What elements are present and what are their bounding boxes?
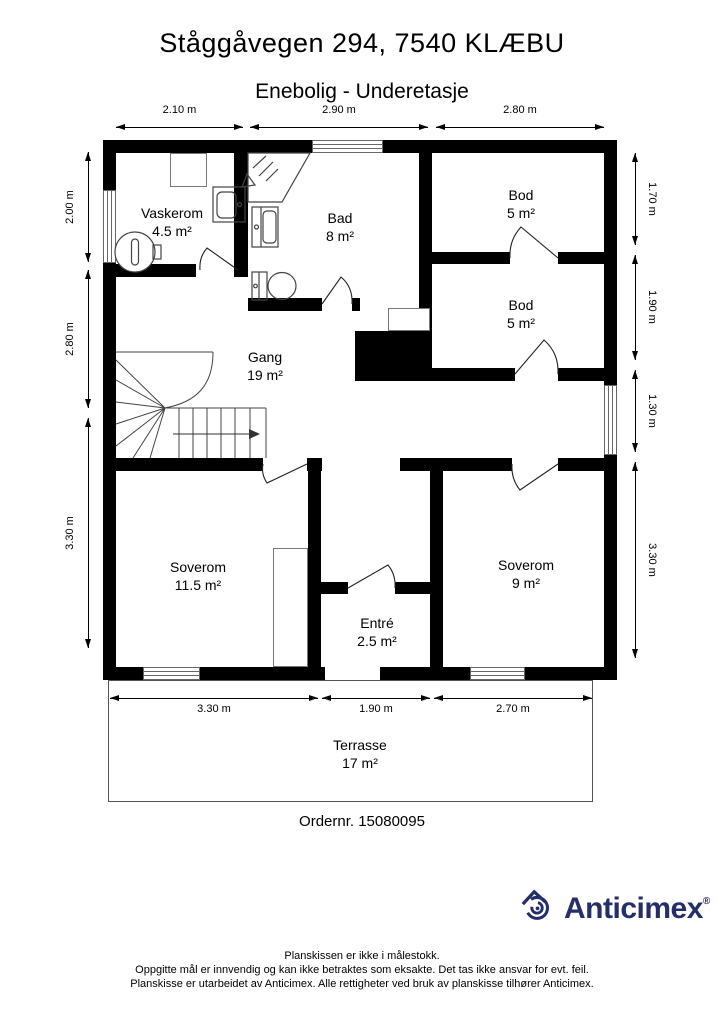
dim-arrow-bottom-2 (322, 698, 430, 699)
room-name: Vaskerom (112, 204, 232, 222)
dim-arrow-top-1 (116, 127, 243, 128)
door-entre-inner (348, 565, 395, 588)
room-label-bad: Bad 8 m² (280, 209, 400, 245)
dim-label: 3.30 m (63, 503, 77, 563)
logo-text: Anticimex® (564, 883, 710, 928)
room-area: 2.5 m² (317, 632, 437, 650)
footer-disclaimer: Planskissen er ikke i målestokk. Oppgitt… (0, 949, 724, 991)
dim-label: 2.80 m (63, 309, 77, 369)
dim-arrow-right-2 (635, 255, 636, 360)
dim-label: 1.90 m (322, 703, 430, 715)
room-name: Soverom (466, 556, 586, 574)
room-label-soverom1: Soverom 11.5 m² (138, 558, 258, 594)
dim-label: 1.90 m (645, 277, 659, 337)
dim-arrow-right-1 (635, 153, 636, 245)
anticimex-logo: Anticimex® (519, 883, 710, 928)
registered-mark: ® (703, 896, 710, 907)
dim-arrow-top-3 (436, 127, 604, 128)
footer-line: Oppgitte mål er innvendig og kan ikke be… (0, 963, 724, 977)
room-label-soverom2: Soverom 9 m² (466, 556, 586, 592)
toilet-icon (252, 272, 296, 300)
room-area: 4.5 m² (112, 222, 232, 240)
dim-arrow-left-1 (88, 152, 89, 262)
dim-label: 2.00 m (63, 177, 77, 237)
room-area: 9 m² (466, 574, 586, 592)
footer-line: Planskisse er utarbeidet av Anticimex. A… (0, 977, 724, 991)
logo-wordmark: Anticimex (564, 892, 703, 925)
room-label-bod1: Bod 5 m² (461, 186, 581, 222)
door-soverom1 (263, 464, 308, 483)
room-label-gang: Gang 19 m² (205, 348, 325, 384)
page-title: Ståggåvegen 294, 7540 KLÆBU (0, 28, 724, 59)
door-bod2 (515, 340, 558, 374)
room-name: Bad (280, 209, 400, 227)
dim-arrow-bottom-3 (434, 698, 592, 699)
room-name: Terrasse (300, 736, 420, 754)
door-vaskerom (200, 248, 238, 270)
room-name: Entré (317, 614, 437, 632)
room-area: 5 m² (461, 204, 581, 222)
dim-label: 3.30 m (645, 530, 659, 590)
shower-icon (242, 153, 310, 202)
room-area: 11.5 m² (138, 576, 258, 594)
dim-arrow-top-2 (250, 127, 428, 128)
room-label-terrasse: Terrasse 17 m² (300, 736, 420, 772)
room-area: 19 m² (205, 366, 325, 384)
dim-label: 1.30 m (645, 381, 659, 441)
room-label-bod2: Bod 5 m² (461, 296, 581, 332)
door-soverom2 (512, 464, 558, 490)
door-bad (322, 277, 352, 304)
footer-line: Planskissen er ikke i målestokk. (0, 949, 724, 963)
dim-label: 1.70 m (645, 169, 659, 229)
dim-label: 2.10 m (116, 104, 243, 116)
floorplan-page: { "header": { "title": "Ståggåvegen 294,… (0, 0, 724, 1024)
room-label-entre: Entré 2.5 m² (317, 614, 437, 650)
anticimex-logo-icon (519, 887, 557, 925)
room-label-vaskerom: Vaskerom 4.5 m² (112, 204, 232, 240)
dim-arrow-left-3 (88, 418, 89, 648)
room-area: 8 m² (280, 227, 400, 245)
dim-arrow-left-2 (88, 270, 89, 408)
room-name: Gang (205, 348, 325, 366)
dim-label: 2.80 m (436, 104, 604, 116)
door-bod1 (510, 227, 558, 258)
stairs-direction-arrow (249, 429, 260, 439)
dim-label: 2.70 m (434, 703, 592, 715)
dim-arrow-bottom-1 (110, 698, 318, 699)
sink-icon (252, 207, 278, 247)
room-area: 5 m² (461, 314, 581, 332)
dim-arrow-right-3 (635, 370, 636, 452)
room-area: 17 m² (300, 754, 420, 772)
room-name: Bod (461, 186, 581, 204)
order-number: Ordernr. 15080095 (0, 813, 724, 830)
dim-arrow-right-4 (635, 462, 636, 658)
dim-label: 2.90 m (250, 104, 428, 116)
room-name: Bod (461, 296, 581, 314)
page-subtitle: Enebolig - Underetasje (0, 80, 724, 104)
dim-label: 3.30 m (110, 703, 318, 715)
room-name: Soverom (138, 558, 258, 576)
